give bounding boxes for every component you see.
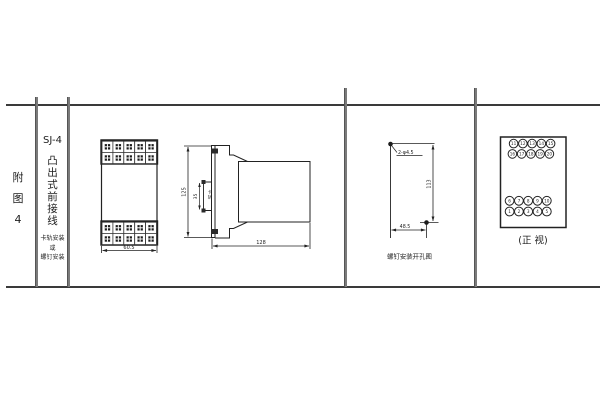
terminal-number: 6 [508,198,511,203]
terminal-number: 7 [518,198,521,203]
technical-drawings: 60.5 125 35 卡 轨 [0,0,600,400]
terminal-number: 18 [528,152,534,157]
terminal-number: 17 [519,152,525,157]
terminal-number: 8 [527,198,530,203]
hole-view-drawing: 2-φ4.5 113 48.5 螺钉安装开孔图 [387,142,438,261]
terminal-number: 5 [545,209,548,214]
terminal-number: 15 [548,141,554,146]
hole-view-caption: 螺钉安装开孔图 [387,252,432,261]
case-profile-bottom [215,222,248,238]
terminal-view-drawing: 1112131415161718192067891012345 (正 视) [501,137,567,247]
front-view-drawing: 60.5 [102,140,158,253]
terminal-number: 9 [536,198,539,203]
terminal-view-caption: (正 视) [518,235,547,247]
case-body [239,162,311,223]
terminal-number: 12 [520,141,526,146]
rail-hook-bottom [202,209,206,213]
case-profile-top [215,146,248,162]
mount-hole-top [388,142,393,147]
flange-clip-bottom [211,229,218,234]
terminal-number: 20 [547,152,553,157]
terminal-number: 16 [510,152,516,157]
terminal-number: 13 [529,141,535,146]
terminal-number: 14 [539,141,545,146]
drawing-sheet: 附 图 4 SJ-4 凸 出 式 前 接 线 卡轨安装 或 螺钉安装 [0,0,600,400]
dim-height-value: 125 [182,187,188,197]
terminal-number: 3 [527,209,530,214]
screw-grid-bottom [102,222,157,244]
screw-grid-top [102,141,157,163]
leader-line [392,146,398,153]
terminal-circles: 1112131415161718192067891012345 [505,139,555,216]
dim-horizontal-value: 48.5 [400,224,411,230]
terminal-number: 1 [508,209,511,214]
terminal-number: 4 [536,209,539,214]
flange-clip-top [211,149,218,154]
dim-vertical-value: 113 [427,179,433,188]
flange-plate [212,146,216,238]
terminal-number: 19 [537,152,543,157]
terminal-number: 11 [511,141,517,146]
dim-depth-value: 128 [256,240,266,246]
side-view-drawing: 125 35 卡 轨 128 [182,146,311,250]
rail-hook-top [202,180,206,184]
dim-rail-value: 35 [193,194,199,200]
terminal-number: 2 [518,209,521,214]
dim-width-value: 60.5 [123,245,134,251]
holes-label: 2-φ4.5 [398,150,414,156]
terminal-number: 10 [544,198,550,203]
